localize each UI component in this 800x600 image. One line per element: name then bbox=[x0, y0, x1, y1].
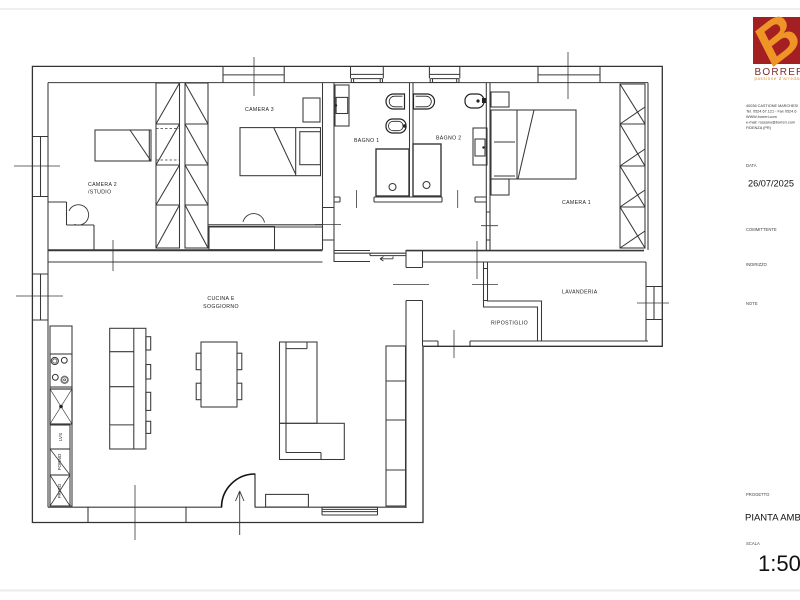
svg-text:FRIGO: FRIGO bbox=[57, 483, 62, 498]
svg-text:BAGNO 2: BAGNO 2 bbox=[436, 136, 462, 142]
svg-text:CAMERA 2: CAMERA 2 bbox=[88, 182, 117, 188]
svg-text:FIDENZA (PR): FIDENZA (PR) bbox=[746, 126, 772, 130]
svg-text:e-mail: rossano@borreri.com: e-mail: rossano@borreri.com bbox=[746, 121, 795, 125]
svg-text:RIPOSTIGLIO: RIPOSTIGLIO bbox=[491, 321, 528, 327]
svg-text:FORNO: FORNO bbox=[57, 453, 62, 470]
svg-text:/STUDIO: /STUDIO bbox=[88, 190, 112, 196]
svg-text:NOTE: NOTE bbox=[746, 301, 758, 306]
svg-text:PROGETTO: PROGETTO bbox=[746, 492, 770, 497]
svg-text:1:50: 1:50 bbox=[758, 551, 800, 576]
svg-text:WWW.borreri.com: WWW.borreri.com bbox=[746, 115, 777, 119]
svg-text:40036 CASTIONE MARCHESI: 40036 CASTIONE MARCHESI bbox=[746, 104, 798, 108]
svg-text:LAVANDERIA: LAVANDERIA bbox=[562, 290, 598, 296]
svg-text:LVS: LVS bbox=[58, 433, 63, 441]
svg-text:COMMITTENTE: COMMITTENTE bbox=[746, 227, 777, 232]
svg-text:CAMERA 1: CAMERA 1 bbox=[562, 200, 591, 206]
svg-text:passione d'arredamento: passione d'arredamento bbox=[755, 76, 800, 81]
svg-text:INDIRIZZO: INDIRIZZO bbox=[746, 262, 768, 267]
svg-text:Tel. 0524.67.121 - Fax 0: Tel. 0524.67.121 - Fax 0524.6 bbox=[746, 110, 796, 114]
svg-text:DATA: DATA bbox=[746, 163, 757, 168]
svg-text:BAGNO 1: BAGNO 1 bbox=[354, 138, 380, 144]
svg-text:26/07/2025: 26/07/2025 bbox=[748, 179, 794, 189]
svg-text:SOGGIORNO: SOGGIORNO bbox=[203, 304, 239, 310]
svg-text:CAMERA 3: CAMERA 3 bbox=[245, 107, 274, 113]
svg-text:PIANTA AMBIENTATA: PIANTA AMBIENTATA bbox=[745, 513, 800, 524]
svg-text:CUCINA E: CUCINA E bbox=[207, 296, 234, 302]
svg-text:SCALA: SCALA bbox=[746, 541, 760, 546]
